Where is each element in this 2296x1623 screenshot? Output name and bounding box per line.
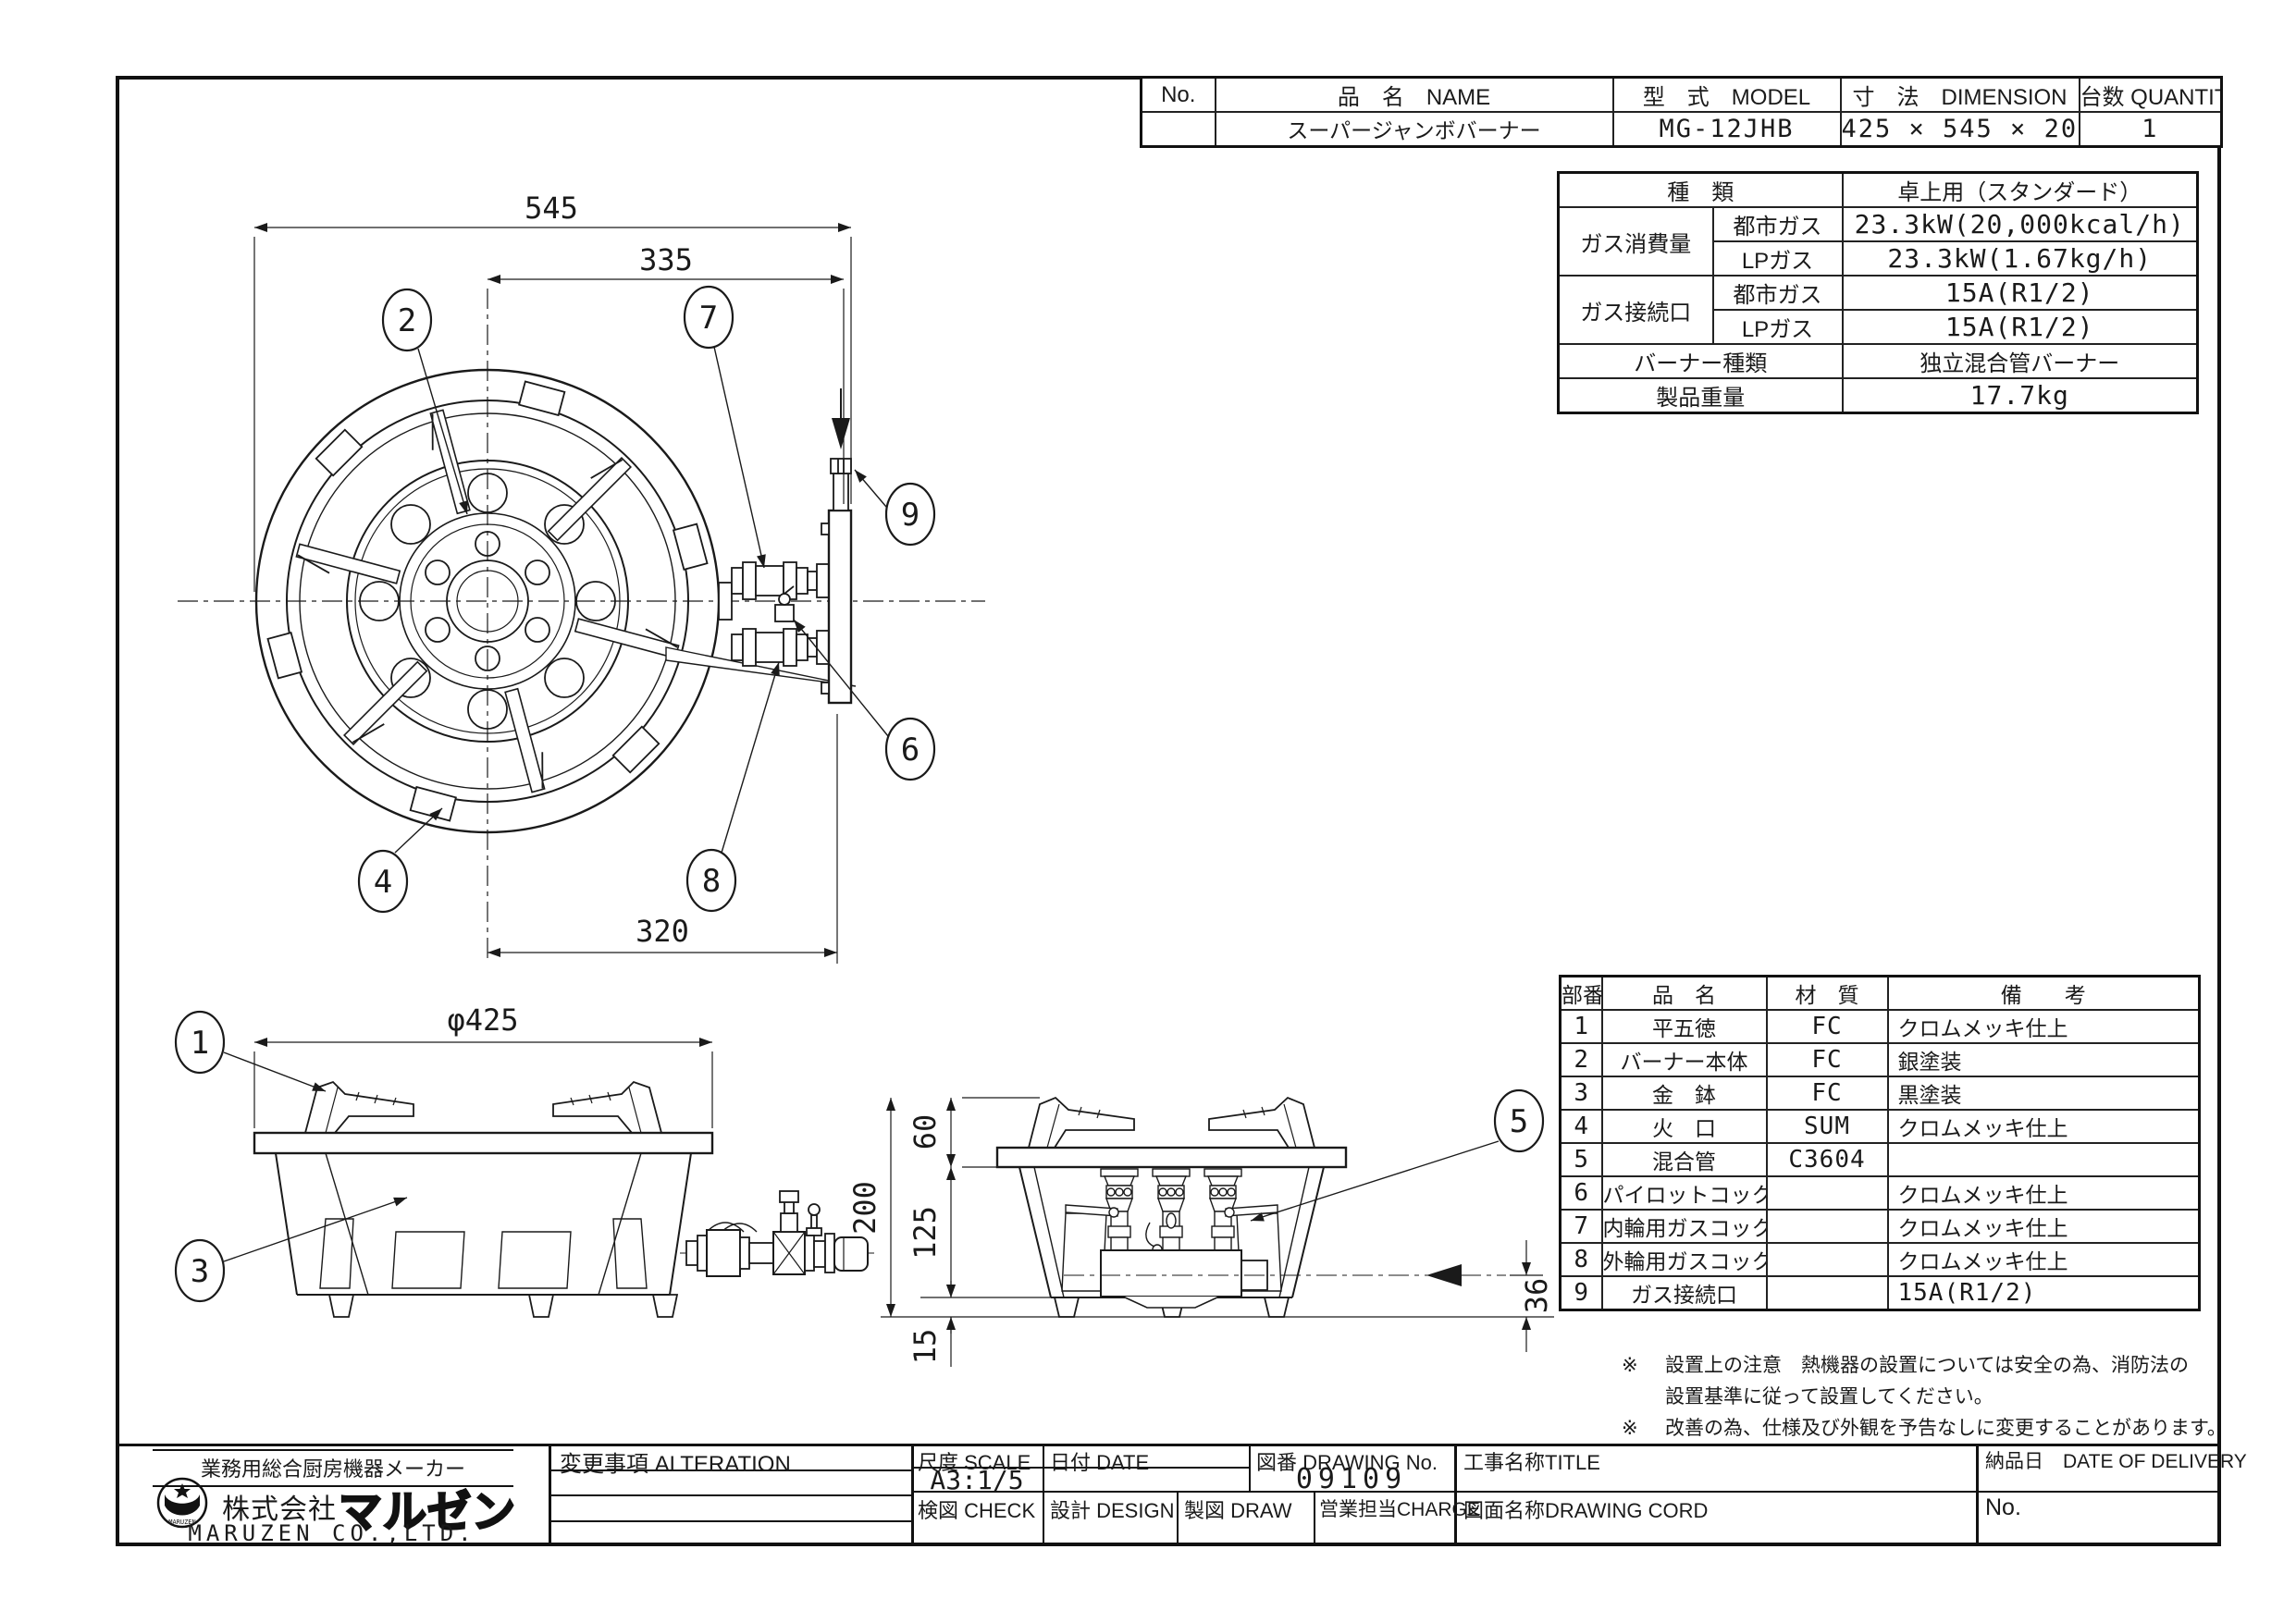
trivet-side-left: [1029, 1098, 1134, 1148]
part-material: FC: [1767, 1076, 1888, 1110]
title-label: 工事名称TITLE: [1463, 1446, 1600, 1476]
front-view: φ425: [176, 1002, 874, 1317]
side-view: 200 60 125 15 36 5: [847, 1090, 1554, 1367]
spec-consumption-label: ガス消費量: [1559, 207, 1713, 276]
design-label: 設計 DESIGN: [1050, 1494, 1174, 1524]
part-note: [1888, 1143, 2200, 1176]
part-material: C3604: [1767, 1143, 1888, 1176]
spec-type-value: 卓上用（スタンダード）: [1843, 173, 2198, 208]
balloon-1: 1: [176, 1012, 326, 1091]
dim-36-text: 36: [1519, 1278, 1554, 1314]
parts-row-6: 6 パイロットコック クロムメッキ仕上: [1561, 1176, 2200, 1210]
part-no: 7: [1561, 1210, 1602, 1243]
part-name: パイロットコック: [1602, 1176, 1767, 1210]
part-material: FC: [1767, 1010, 1888, 1043]
note-text: 改善の為、仕様及び外観を予告なしに変更することがあります。: [1665, 1413, 2227, 1445]
spec-connection-lp-label: LPガス: [1713, 310, 1843, 344]
dim-60-text: 60: [907, 1114, 943, 1150]
drawing-cord-label: 図面名称DRAWING CORD: [1463, 1494, 1708, 1524]
parts-note-header: 備 考: [1888, 977, 2200, 1011]
part-material: [1767, 1276, 1888, 1310]
note-text: 設置上の注意 熱機器の設置については安全の為、消防法の: [1665, 1350, 2189, 1382]
dim-545-text: 545: [525, 191, 578, 226]
spec-consumption-lp: 23.3kW(1.67kg/h): [1843, 241, 2198, 276]
part-no: 2: [1561, 1043, 1602, 1076]
spec-weight-value: 17.7kg: [1843, 378, 2198, 413]
date-label: 日付 DATE: [1050, 1446, 1149, 1476]
part-note: クロムメッキ仕上: [1888, 1176, 2200, 1210]
part-no: 9: [1561, 1276, 1602, 1310]
note-mark: ※: [1622, 1350, 1665, 1382]
part-no: 6: [1561, 1176, 1602, 1210]
part-note: 15A(R1/2): [1888, 1276, 2200, 1310]
dim-125-text: 125: [907, 1206, 943, 1260]
charge-label: 営業担当CHARGE: [1319, 1494, 1480, 1522]
part-note: 銀塗装: [1888, 1043, 2200, 1076]
parts-row-4: 4 火 口 SUM クロムメッキ仕上: [1561, 1110, 2200, 1143]
pilot-tube: [1146, 1223, 1154, 1247]
drawing-sheet: 545 335 320 2 7: [0, 0, 2296, 1623]
product-dimension: 425 × 545 × 200: [1841, 112, 2080, 146]
svg-text:4: 4: [374, 864, 392, 901]
dim-200-text: 200: [847, 1181, 883, 1235]
spec-connection-lp: 15A(R1/2): [1843, 310, 2198, 344]
product-model: MG-12JHB: [1613, 112, 1841, 146]
header-no-label: No.: [1142, 78, 1216, 113]
parts-row-2: 2 バーナー本体 FC 銀塗装: [1561, 1043, 2200, 1076]
feet-front: [329, 1295, 677, 1317]
part-material: [1767, 1210, 1888, 1243]
parts-row-1: 1 平五徳 FC クロムメッキ仕上: [1561, 1010, 2200, 1043]
draw-label: 製図 DRAW: [1184, 1494, 1292, 1524]
parts-row-8: 8 外輪用ガスコック クロムメッキ仕上: [1561, 1243, 2200, 1276]
parts-table: 部番 品 名 材 質 備 考 1 平五徳 FC クロムメッキ仕上 2 バーナー本…: [1559, 975, 2201, 1311]
note-line-2: 設置基準に従って設置してください。: [1622, 1382, 2232, 1413]
company-name-en: MARUZEN CO.,LTD.: [116, 1520, 549, 1546]
trivet-side-right: [1209, 1098, 1315, 1148]
parts-row-3: 3 金 鉢 FC 黒塗装: [1561, 1076, 2200, 1110]
valve-assembly-front: [680, 1191, 874, 1276]
part-name: 平五徳: [1602, 1010, 1767, 1043]
top-plate-front: [254, 1133, 712, 1153]
balloon-9: 9: [855, 470, 934, 545]
part-note: クロムメッキ仕上: [1888, 1210, 2200, 1243]
spec-type-label: 種 類: [1559, 173, 1843, 208]
balloon-5: 5: [1251, 1090, 1543, 1221]
part-note: 黒塗装: [1888, 1076, 2200, 1110]
note-mark: ※: [1622, 1413, 1665, 1445]
alteration-label: 変更事項 ALTERATION: [560, 1445, 791, 1478]
spec-connection-city-label: 都市ガス: [1713, 276, 1843, 310]
part-name: 火 口: [1602, 1110, 1767, 1143]
part-name: バーナー本体: [1602, 1043, 1767, 1076]
spec-connection-label: ガス接続口: [1559, 276, 1713, 344]
svg-text:7: 7: [699, 300, 718, 337]
spec-lp-gas-label: LPガス: [1713, 241, 1843, 276]
part-name: 外輪用ガスコック: [1602, 1243, 1767, 1276]
top-view: 545 335 320 2 7: [178, 191, 985, 964]
header-quantity-label: 台数 QUANTITY: [2080, 78, 2222, 113]
svg-text:8: 8: [702, 863, 721, 900]
delivery-no-label: No.: [1985, 1494, 2021, 1521]
installation-notes: ※ 設置上の注意 熱機器の設置については安全の為、消防法の 設置基準に従って設置…: [1622, 1350, 2232, 1445]
body-front: [276, 1153, 691, 1295]
part-name: 内輪用ガスコック: [1602, 1210, 1767, 1243]
part-no: 3: [1561, 1076, 1602, 1110]
manifold-flange: [829, 510, 851, 703]
gas-inlet-arrow: [832, 418, 850, 449]
part-note: クロムメッキ仕上: [1888, 1243, 2200, 1276]
scale-value: A3:1/5: [911, 1465, 1043, 1495]
balloon-4: 4: [359, 808, 442, 912]
part-material: [1767, 1176, 1888, 1210]
part-no: 1: [1561, 1010, 1602, 1043]
part-material: SUM: [1767, 1110, 1888, 1143]
drawing-no-value: 09109: [1249, 1463, 1454, 1495]
header-model-label: 型 式 MODEL: [1613, 78, 1841, 113]
manifold-side: [1101, 1250, 1267, 1308]
svg-text:5: 5: [1510, 1103, 1528, 1140]
note-line-1: ※ 設置上の注意 熱機器の設置については安全の為、消防法の: [1622, 1350, 2232, 1382]
spec-weight-label: 製品重量: [1559, 378, 1843, 413]
part-no: 8: [1561, 1243, 1602, 1276]
parts-row-5: 5 混合管 C3604: [1561, 1143, 2200, 1176]
svg-text:1: 1: [191, 1025, 209, 1062]
part-note: クロムメッキ仕上: [1888, 1010, 2200, 1043]
part-name: ガス接続口: [1602, 1276, 1767, 1310]
balloon-8: 8: [687, 662, 779, 911]
spec-city-gas-label: 都市ガス: [1713, 207, 1843, 241]
dim-425-text: φ425: [447, 1002, 518, 1038]
part-no: 5: [1561, 1143, 1602, 1176]
check-label: 検図 CHECK: [918, 1494, 1035, 1524]
spec-connection-city: 15A(R1/2): [1843, 276, 2198, 310]
dim-320-text: 320: [636, 914, 689, 949]
parts-row-7: 7 内輪用ガスコック クロムメッキ仕上: [1561, 1210, 2200, 1243]
dim-335-text: 335: [639, 242, 693, 277]
dim-15-text: 15: [907, 1329, 943, 1365]
mixing-tubes: [1066, 1169, 1278, 1258]
pilot-cock-top: [775, 605, 794, 621]
product-quantity: 1: [2080, 112, 2222, 146]
part-no: 4: [1561, 1110, 1602, 1143]
delivery-label: 納品日 DATE OF DELIVERY: [1985, 1446, 2247, 1474]
part-material: FC: [1767, 1043, 1888, 1076]
spec-consumption-city: 23.3kW(20,000kcal/h): [1843, 207, 2198, 241]
gas-flow-arrow: [1426, 1264, 1462, 1286]
header-table: No. 品 名 NAME 型 式 MODEL 寸 法 DIMENSION 台数 …: [1140, 76, 2223, 148]
svg-text:6: 6: [901, 732, 920, 768]
product-no: [1142, 112, 1216, 146]
part-note: クロムメッキ仕上: [1888, 1110, 2200, 1143]
part-material: [1767, 1243, 1888, 1276]
spec-burner-type-label: バーナー種類: [1559, 344, 1843, 378]
product-name: スーパージャンボバーナー: [1216, 112, 1613, 146]
part-name: 混合管: [1602, 1143, 1767, 1176]
part-name: 金 鉢: [1602, 1076, 1767, 1110]
parts-row-9: 9 ガス接続口 15A(R1/2): [1561, 1276, 2200, 1310]
spec-table: 種 類 卓上用（スタンダード） ガス消費量 都市ガス 23.3kW(20,000…: [1557, 171, 2199, 414]
note-text: 設置基準に従って設置してください。: [1665, 1382, 1994, 1413]
gas-inlet-nipple: [833, 473, 848, 510]
spec-burner-type-value: 独立混合管バーナー: [1843, 344, 2198, 378]
header-dimension-label: 寸 法 DIMENSION: [1841, 78, 2080, 113]
note-line-3: ※ 改善の為、仕様及び外観を予告なしに変更することがあります。: [1622, 1413, 2232, 1445]
header-name-label: 品 名 NAME: [1216, 78, 1613, 113]
parts-no-header: 部番: [1561, 977, 1602, 1011]
svg-text:9: 9: [901, 497, 920, 534]
svg-text:2: 2: [398, 302, 416, 339]
balloon-3: 3: [176, 1198, 407, 1301]
parts-material-header: 材 質: [1767, 977, 1888, 1011]
parts-name-header: 品 名: [1602, 977, 1767, 1011]
top-plate-side: [997, 1148, 1346, 1167]
trivet-front-right: [553, 1082, 661, 1133]
svg-text:3: 3: [191, 1253, 209, 1290]
